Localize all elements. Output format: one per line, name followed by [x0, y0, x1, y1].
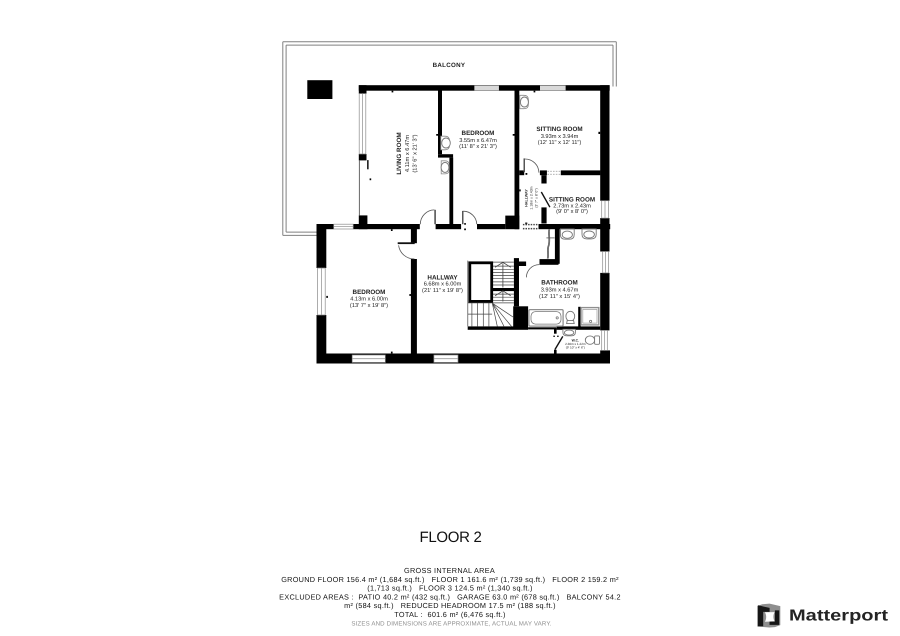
svg-text:4.11m x 6.47m: 4.11m x 6.47m — [405, 135, 411, 172]
svg-text:1.18m x 2.43m: 1.18m x 2.43m — [530, 186, 534, 209]
svg-text:BEDROOM: BEDROOM — [353, 289, 386, 296]
svg-text:EXCLUDED AREAS : PATIO 40.2 m: EXCLUDED AREAS : PATIO 40.2 m² (432 sq.f… — [279, 592, 621, 601]
svg-text:3.93m x 4.67m: 3.93m x 4.67m — [541, 287, 579, 293]
svg-text:BATHROOM: BATHROOM — [541, 280, 578, 287]
svg-text:(3' 7" x 8' 0"): (3' 7" x 8' 0") — [535, 188, 539, 208]
svg-text:BEDROOM: BEDROOM — [462, 130, 495, 137]
svg-text:(9' 0" x 8' 0"): (9' 0" x 8' 0") — [556, 208, 588, 215]
svg-text:(13' 7" x 19' 8"): (13' 7" x 19' 8") — [350, 302, 388, 309]
svg-text:(12' 11" x 15' 4"): (12' 11" x 15' 4") — [539, 293, 580, 300]
svg-text:(11' 8" x 21' 3"): (11' 8" x 21' 3") — [459, 143, 497, 150]
svg-text:(13' 6" x 21' 3"): (13' 6" x 21' 3") — [412, 134, 419, 172]
svg-text:LIVING ROOM: LIVING ROOM — [396, 132, 403, 174]
svg-text:Matterport: Matterport — [789, 608, 889, 625]
svg-text:3.55m x 6.47m: 3.55m x 6.47m — [459, 138, 497, 144]
svg-text:4.13m x 6.00m: 4.13m x 6.00m — [350, 296, 388, 302]
svg-text:(9' 10" x 4' 6"): (9' 10" x 4' 6") — [566, 346, 585, 350]
svg-text:6.68m x 6.00m: 6.68m x 6.00m — [424, 282, 462, 288]
svg-text:SITTING ROOM: SITTING ROOM — [536, 126, 582, 133]
svg-text:TOTAL : 601.6 m² (6,476 sq.ft: TOTAL : 601.6 m² (6,476 sq.ft.) — [394, 610, 505, 619]
svg-text:GROSS INTERNAL AREA: GROSS INTERNAL AREA — [404, 566, 495, 575]
svg-text:(1,713 sq.ft.) FLOOR 3 124.5: (1,713 sq.ft.) FLOOR 3 124.5 m² (1,340 s… — [367, 584, 533, 593]
svg-text:m² (584 sq.ft.) REDUCED HEAD: m² (584 sq.ft.) REDUCED HEADROOM 17.5 m²… — [344, 601, 556, 610]
svg-text:(12' 11" x 12' 11"): (12' 11" x 12' 11") — [538, 139, 582, 146]
svg-text:SIZES AND DIMENSIONS ARE APPRO: SIZES AND DIMENSIONS ARE APPROXIMATE, AC… — [351, 620, 551, 627]
svg-text:(21' 11" x 19' 8"): (21' 11" x 19' 8") — [422, 287, 463, 294]
svg-text:BALCONY: BALCONY — [433, 62, 466, 69]
svg-text:HALLWAY: HALLWAY — [524, 189, 528, 207]
svg-text:FLOOR 2: FLOOR 2 — [419, 529, 481, 546]
